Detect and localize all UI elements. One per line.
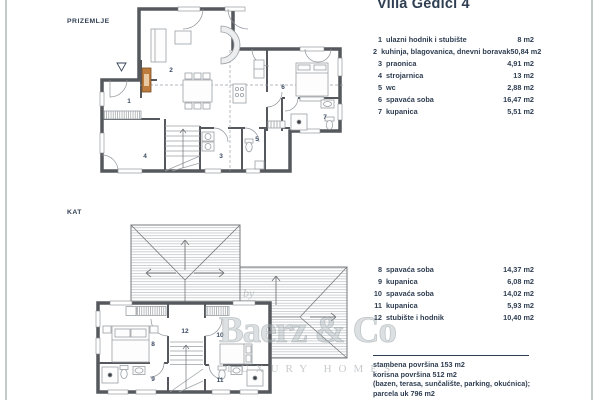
room-label: ulazni hodnik i stubište [386,35,517,44]
kitchen-counter [233,84,246,103]
room-label: kuhinja, blagovanica, dnevni boravak [381,47,510,56]
room-label: spavaća soba [386,95,503,104]
summary-line: stambena površina 153 m2 [373,360,548,370]
radiator [268,121,285,128]
dining-table [183,80,212,102]
room-area: 10,40 m2 [503,313,534,322]
room-area: 5,51 m2 [507,107,534,116]
room-number: 11 [217,377,224,384]
room-list-row: 4strojarnica13 m2 [373,69,534,81]
room-number: 8 [373,265,382,274]
room-number: 7 [323,114,327,121]
closet-room8 [137,307,166,316]
room-number: 12 [181,328,189,335]
room-label: strojarnica [386,71,513,80]
entry-closet [104,111,141,119]
room-number: 1 [127,98,131,105]
room-number: 9 [151,376,155,383]
room-number: 6 [281,84,285,91]
room-number: 7 [373,107,382,116]
room-label: kupanica [386,277,507,286]
room-number: 12 [373,313,382,322]
floorplan-sheet: Villa Gedici 4 PRIZEMLJE KAT [0,0,600,400]
room-label: spavaća soba [386,289,503,298]
room-number: 8 [151,341,155,348]
closet-room10 [206,307,229,316]
room-label: spavaća soba [386,265,503,274]
room-area: 6,08 m2 [507,277,534,286]
room-area: 8 m2 [517,35,534,44]
room-list-row: 8spavaća soba14,37 m2 [373,263,534,275]
room-list-row: 6spavaća soba16,47 m2 [373,94,534,106]
room-list-row: 12stubište i hodnik10,40 m2 [373,312,534,324]
room-number: 10 [373,289,382,298]
area-summary: stambena površina 153 m2 korisna površin… [373,360,548,398]
ground-floor-room-list: 1ulazni hodnik i stubište8 m2 2kuhinja, … [373,33,534,118]
room-label: stubište i hodnik [386,313,503,322]
summary-line: korisna površina 512 m2 [373,370,548,380]
coffee-table [175,31,191,44]
room-area: 50,84 m2 [510,47,541,56]
room-list-row: 2kuhinja, blagovanica, dnevni boravak50,… [373,45,534,57]
room-label: kupanica [386,107,507,116]
ground-floor-plan: 1 2 3 4 5 6 7 [100,7,343,173]
room-number: 4 [373,71,382,80]
room-area: 13 m2 [513,71,534,80]
room-number: 4 [143,153,147,160]
room-list-row: 9kupanica6,08 m2 [373,275,534,287]
summary-line: (bazen, terasa, sunčalište, parking, oku… [373,379,548,389]
room-number: 5 [255,136,259,143]
summary-line: parcela uk 796 m2 [373,389,548,399]
room-label: wc [386,83,507,92]
room-number: 2 [169,67,173,74]
room-number: 11 [373,301,382,310]
entrance-marker-icon [117,63,126,71]
room-area: 2,88 m2 [507,83,534,92]
room-number: 1 [373,35,382,44]
room-number: 3 [219,153,223,160]
sofa [151,29,166,62]
room-number: 5 [373,83,382,92]
upper-floor-plan: 8 9 10 11 12 [96,225,347,394]
toilet-room9 [120,366,128,370]
room-number: 10 [216,332,224,339]
room-area: 4,91 m2 [507,59,534,68]
room-list-row: 5wc2,88 m2 [373,82,534,94]
room-list-row: 10spavaća soba14,02 m2 [373,287,534,299]
upper-floor-room-list: 8spavaća soba14,37 m2 9kupanica6,08 m2 1… [373,263,534,324]
room-list-row: 3praonica4,91 m2 [373,57,534,69]
room-list-row: 7kupanica5,51 m2 [373,106,534,118]
summary-divider [373,355,529,356]
room-area: 16,47 m2 [503,95,534,104]
room-number: 3 [373,59,382,68]
room-number: 9 [373,277,382,286]
room-area: 5,93 m2 [507,301,534,310]
room-label: kupanica [386,301,507,310]
sink-wc [255,161,264,169]
room-list-row: 1ulazni hodnik i stubište8 m2 [373,33,534,45]
room-number: 2 [373,47,377,56]
room-area: 14,37 m2 [503,265,534,274]
room-list-row: 11kupanica5,93 m2 [373,299,534,311]
room-label: praonica [386,59,507,68]
toilet-room11 [218,366,226,370]
room-number: 6 [373,95,382,104]
room-area: 14,02 m2 [503,289,534,298]
